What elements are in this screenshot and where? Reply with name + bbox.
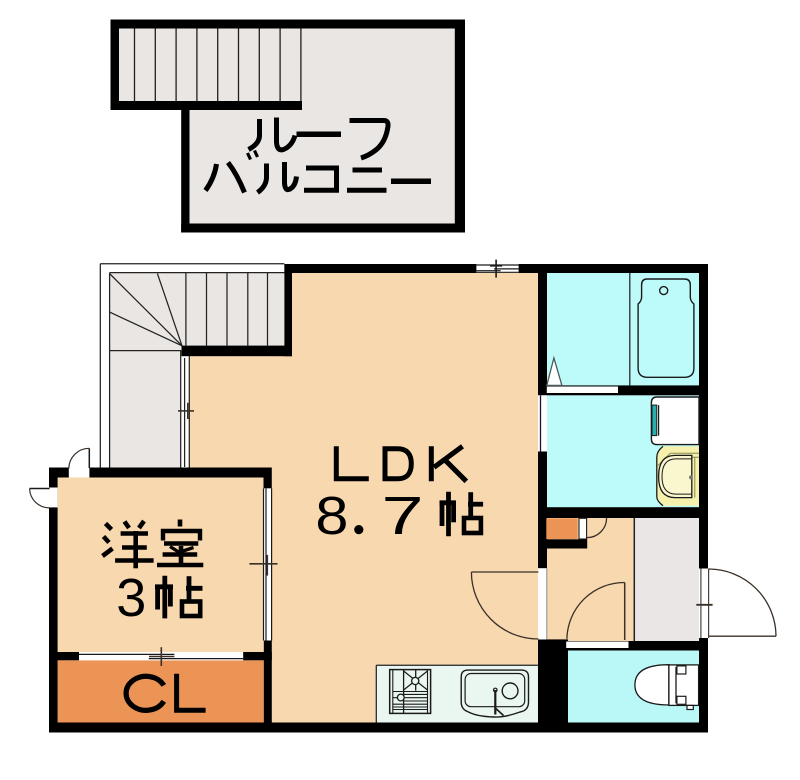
svg-text:7: 7 (381, 485, 423, 545)
svg-text:8: 8 (315, 486, 348, 546)
svg-text:3: 3 (116, 568, 146, 628)
